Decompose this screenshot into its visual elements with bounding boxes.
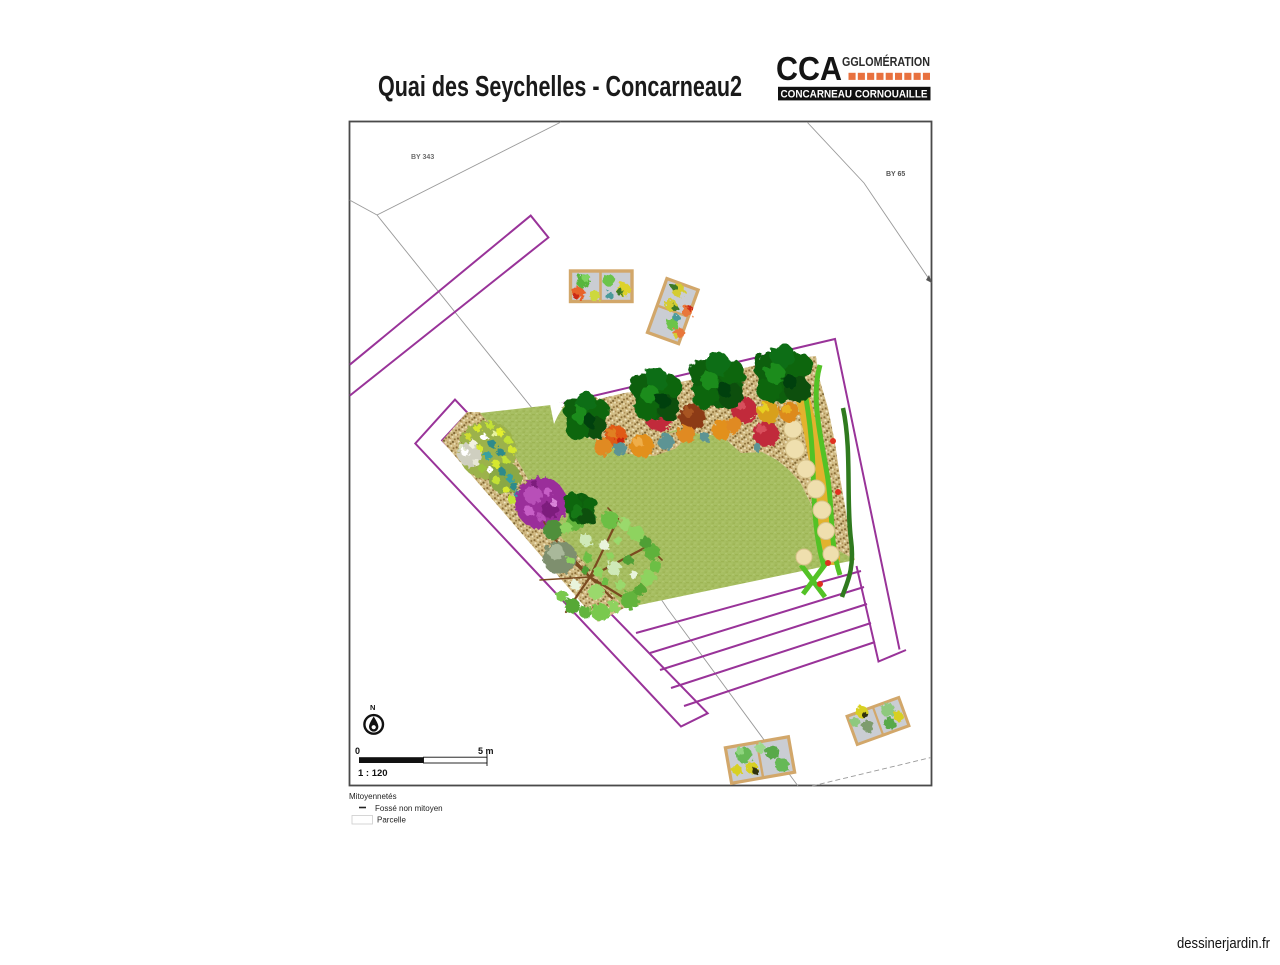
svg-text:0: 0 bbox=[355, 746, 360, 756]
svg-text:CCA: CCA bbox=[776, 50, 842, 87]
svg-text:Quai des Seychelles - Concarne: Quai des Seychelles - Concarneau2 bbox=[378, 71, 742, 103]
svg-text:GGLOMÉRATION: GGLOMÉRATION bbox=[842, 54, 930, 69]
svg-text:N: N bbox=[370, 703, 375, 712]
svg-text:BY 343: BY 343 bbox=[411, 154, 434, 161]
svg-text:1 : 120: 1 : 120 bbox=[358, 768, 388, 779]
svg-text:Parcelle: Parcelle bbox=[377, 816, 406, 825]
svg-text:dessinerjardin.fr: dessinerjardin.fr bbox=[1177, 935, 1270, 952]
svg-text:BY 65: BY 65 bbox=[886, 171, 905, 178]
svg-text:CONCARNEAU CORNOUAILLE: CONCARNEAU CORNOUAILLE bbox=[781, 89, 928, 101]
svg-text:Mitoyennetés: Mitoyennetés bbox=[349, 792, 397, 801]
svg-text:Fossé non mitoyen: Fossé non mitoyen bbox=[375, 804, 443, 813]
svg-text:5 m: 5 m bbox=[478, 746, 494, 756]
